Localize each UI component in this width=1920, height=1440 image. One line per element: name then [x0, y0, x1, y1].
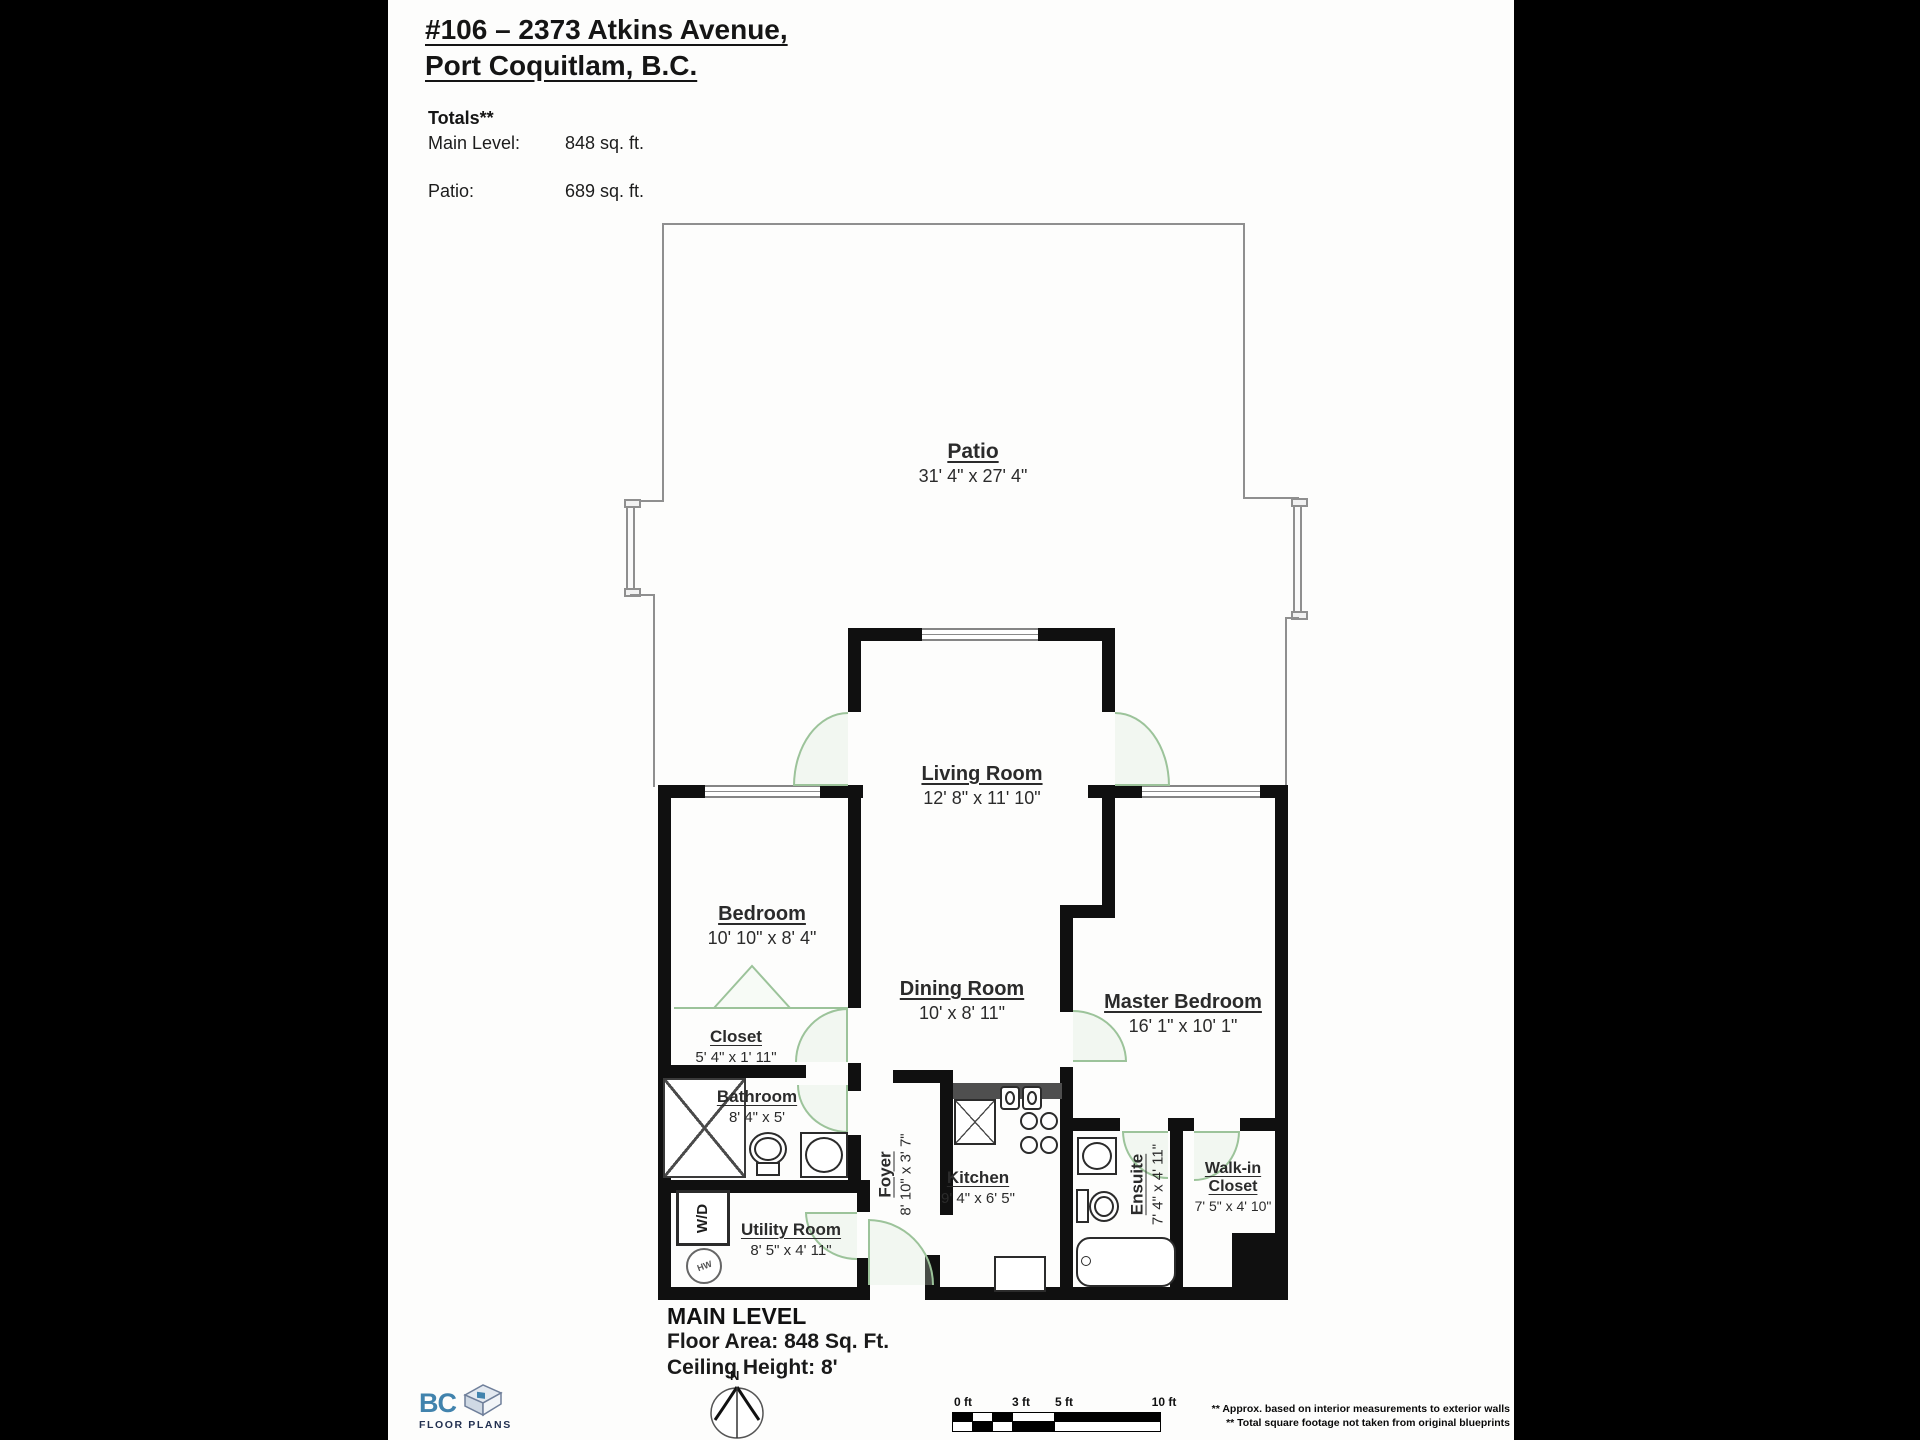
- wall: [658, 1287, 867, 1300]
- wall: [857, 1180, 870, 1212]
- compass-north-label: N: [730, 1368, 739, 1383]
- room-label-foyer: Foyer 8' 10" x 3' 7": [876, 1100, 915, 1250]
- patio-railing: [626, 502, 635, 594]
- scale-label-3: 3 ft: [1012, 1395, 1030, 1409]
- patio-outline: [653, 594, 655, 787]
- wall: [1073, 1118, 1120, 1131]
- patio-outline: [1285, 617, 1299, 619]
- scale-label-0: 0 ft: [954, 1395, 972, 1409]
- patio-outline: [1285, 617, 1287, 787]
- window: [1142, 785, 1260, 798]
- ensuite-sink-icon: [1077, 1137, 1117, 1175]
- wall: [1275, 785, 1288, 1300]
- level-title: MAIN LEVEL: [667, 1303, 806, 1330]
- room-label-living-room: Living Room 12' 8" x 11' 10": [921, 763, 1042, 809]
- room-label-bedroom: Bedroom 10' 10" x 8' 4": [708, 903, 817, 949]
- patio-outline: [1243, 223, 1245, 499]
- totals-patio-value: 689 sq. ft.: [565, 181, 644, 201]
- room-label-patio: Patio 31' 4" x 27' 4": [919, 440, 1028, 487]
- totals-main-value: 848 sq. ft.: [565, 133, 644, 153]
- room-label-utility-room: Utility Room 8' 5" x 4' 11": [741, 1220, 841, 1259]
- ensuite-toilet-tank-icon: [1076, 1189, 1089, 1223]
- ensuite-toilet-icon: [1089, 1191, 1119, 1222]
- disclaimer-line-1: ** Approx. based on interior measurement…: [1148, 1402, 1510, 1416]
- logo-bc-text: BC: [419, 1388, 456, 1419]
- kitchen-cabinet-icon: [994, 1256, 1046, 1292]
- hot-water-label: HW: [695, 1259, 713, 1274]
- wall: [848, 628, 861, 712]
- address-line-2: Port Coquitlam, B.C.: [425, 48, 788, 84]
- window: [705, 785, 820, 798]
- room-label-master-bedroom: Master Bedroom 16' 1" x 10' 1": [1104, 991, 1262, 1037]
- window: [922, 628, 1038, 641]
- wall: [658, 785, 671, 1300]
- scale-cell: [1012, 1421, 1056, 1432]
- patio-outline: [630, 594, 655, 596]
- room-label-closet: Closet 5' 4" x 1' 11": [695, 1027, 776, 1066]
- toilet-icon: [749, 1132, 787, 1166]
- stove-burner-icon: [1040, 1112, 1058, 1130]
- disclaimer-line-2: ** Total square footage not taken from o…: [1148, 1416, 1510, 1430]
- wall: [848, 785, 861, 1008]
- stove-burner-icon: [1040, 1136, 1058, 1154]
- totals-row-main-level: Main Level:848 sq. ft.: [428, 133, 644, 154]
- wall: [1060, 1067, 1073, 1300]
- totals-main-label: Main Level:: [428, 133, 565, 154]
- washer-dryer-icon: W/D: [676, 1190, 730, 1246]
- patio-outline: [662, 223, 1243, 225]
- wall: [848, 1135, 861, 1180]
- scale-cell: [952, 1421, 974, 1432]
- floor-area-text: Floor Area: 848 Sq. Ft.: [667, 1330, 889, 1354]
- totals-patio-label: Patio:: [428, 181, 565, 202]
- room-label-dining-room: Dining Room 10' x 8' 11": [900, 978, 1024, 1024]
- wall: [1232, 1233, 1288, 1293]
- totals-heading: Totals**: [428, 108, 494, 129]
- logo-floor-plans-text: FLOOR PLANS: [419, 1419, 512, 1431]
- totals-row-patio: Patio:689 sq. ft.: [428, 181, 644, 202]
- scale-cell: [972, 1421, 994, 1432]
- kitchen-sink-icon: [1000, 1086, 1020, 1110]
- fridge-icon: [954, 1099, 996, 1145]
- wall: [1240, 1118, 1288, 1131]
- wall: [848, 1063, 861, 1091]
- address-line-1: #106 – 2373 Atkins Avenue,: [425, 12, 788, 48]
- room-label-kitchen: Kitchen 9' 4" x 6' 5": [941, 1168, 1015, 1207]
- page-background: [388, 0, 1514, 1440]
- bathroom-sink-icon: [800, 1132, 848, 1178]
- scale-label-5: 5 ft: [1055, 1395, 1073, 1409]
- disclaimer: ** Approx. based on interior measurement…: [1148, 1402, 1510, 1430]
- wall: [1060, 905, 1073, 1012]
- room-label-walkin-closet: Walk-in Closet 7' 5" x 4' 10": [1195, 1160, 1272, 1214]
- kitchen-sink-icon: [1022, 1086, 1042, 1110]
- patio-railing: [1293, 501, 1302, 617]
- hot-water-tank-icon: HW: [686, 1248, 722, 1284]
- toilet-tank-icon: [756, 1162, 780, 1176]
- stove-burner-icon: [1020, 1112, 1038, 1130]
- room-label-ensuite: Ensuite 7' 4" x 4' 11": [1128, 1110, 1167, 1260]
- closet-accordion-door: [674, 960, 848, 1012]
- stove-burner-icon: [1020, 1136, 1038, 1154]
- scale-cell: [992, 1421, 1014, 1432]
- ceiling-height-text: Ceiling Height: 8': [667, 1356, 838, 1380]
- patio-outline: [662, 223, 664, 500]
- washer-dryer-label: W/D: [694, 1203, 711, 1232]
- page-title: #106 – 2373 Atkins Avenue, Port Coquitla…: [425, 12, 788, 84]
- floor-plan-sheet: #106 – 2373 Atkins Avenue, Port Coquitla…: [0, 0, 1920, 1440]
- wall: [1102, 785, 1115, 918]
- wall: [658, 1065, 806, 1078]
- compass-icon: [708, 1384, 766, 1440]
- wall: [1102, 628, 1115, 712]
- bathtub-faucet-icon: [1081, 1256, 1091, 1266]
- room-label-bathroom: Bathroom 8' 4" x 5': [717, 1087, 797, 1126]
- logo-house-icon: [457, 1381, 503, 1417]
- scale-cell: [1054, 1421, 1161, 1432]
